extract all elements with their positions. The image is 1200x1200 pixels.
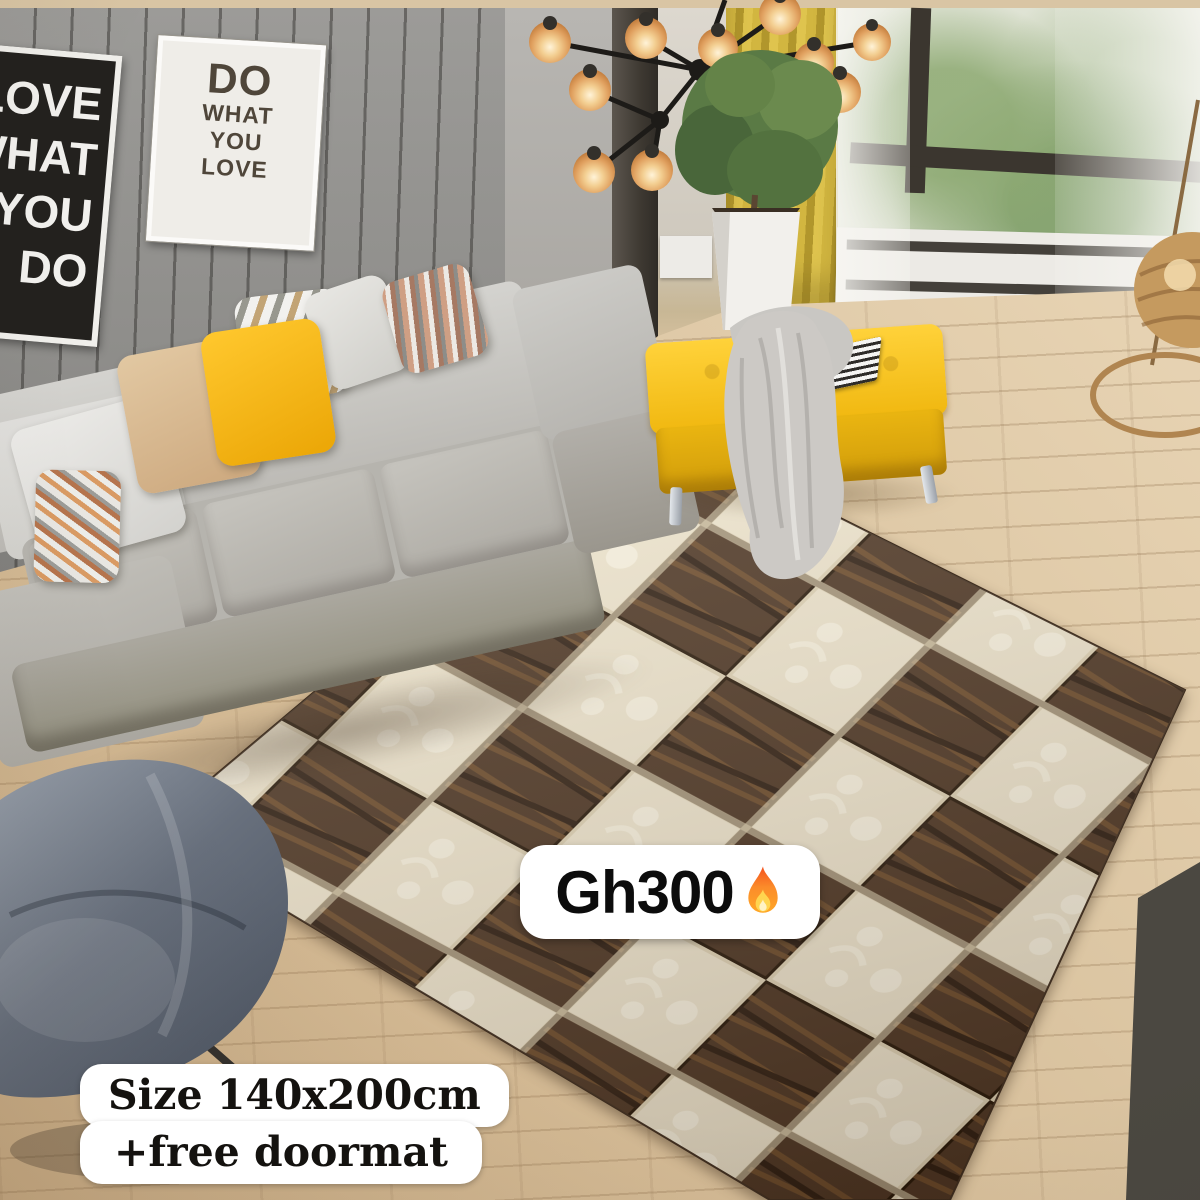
size-label: Size 140x200cm +free doormat	[80, 1064, 509, 1184]
wicker-floor-lamp	[1080, 60, 1200, 450]
price-tag: Gh300	[520, 845, 820, 939]
fire-icon	[741, 864, 785, 920]
orange-striped-pillow	[33, 469, 121, 583]
gray-throw-blanket	[690, 298, 910, 588]
size-label-line2: +free doormat	[80, 1121, 482, 1184]
living-room-product-photo: LOVE WHAT YOU DO DO WHAT YOU LOVE	[0, 0, 1200, 1200]
poster-line: LOVE	[0, 63, 105, 132]
bench-leg	[669, 487, 682, 525]
price-text: Gh300	[555, 858, 733, 927]
do-what-you-love-poster: DO WHAT YOU LOVE	[146, 35, 326, 251]
size-label-line1: Size 140x200cm	[80, 1064, 509, 1127]
yellow-pillow	[199, 317, 338, 468]
